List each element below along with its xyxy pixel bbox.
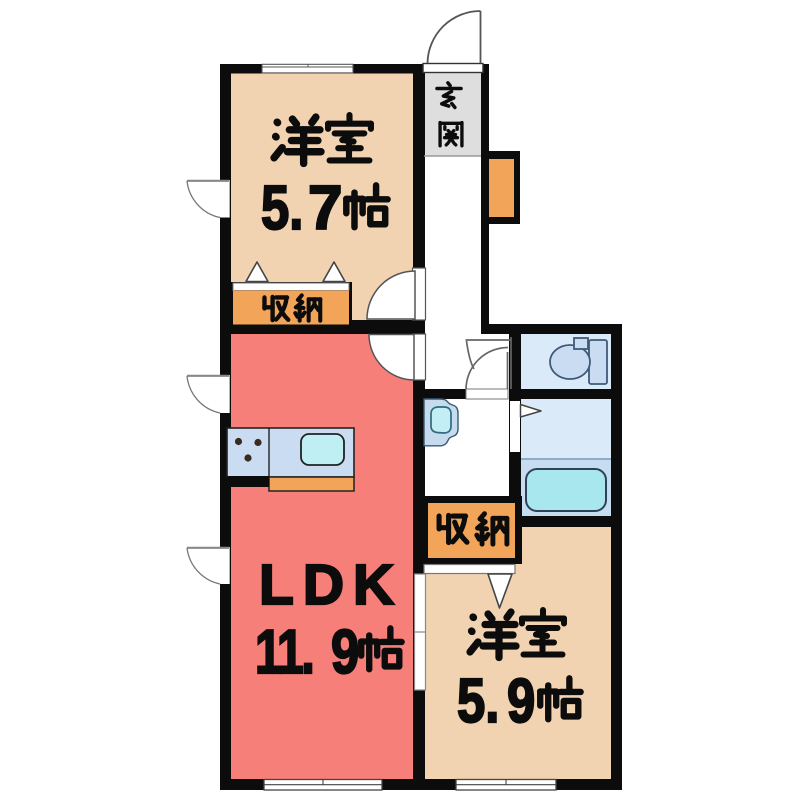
svg-text:7: 7 <box>308 174 342 243</box>
svg-text:5.: 5. <box>457 667 499 736</box>
svg-text:9: 9 <box>507 667 535 736</box>
svg-text:11.: 11. <box>255 617 313 686</box>
svg-text:LDK: LDK <box>259 553 403 617</box>
svg-text:9: 9 <box>331 618 359 687</box>
svg-text:5.: 5. <box>261 174 303 243</box>
